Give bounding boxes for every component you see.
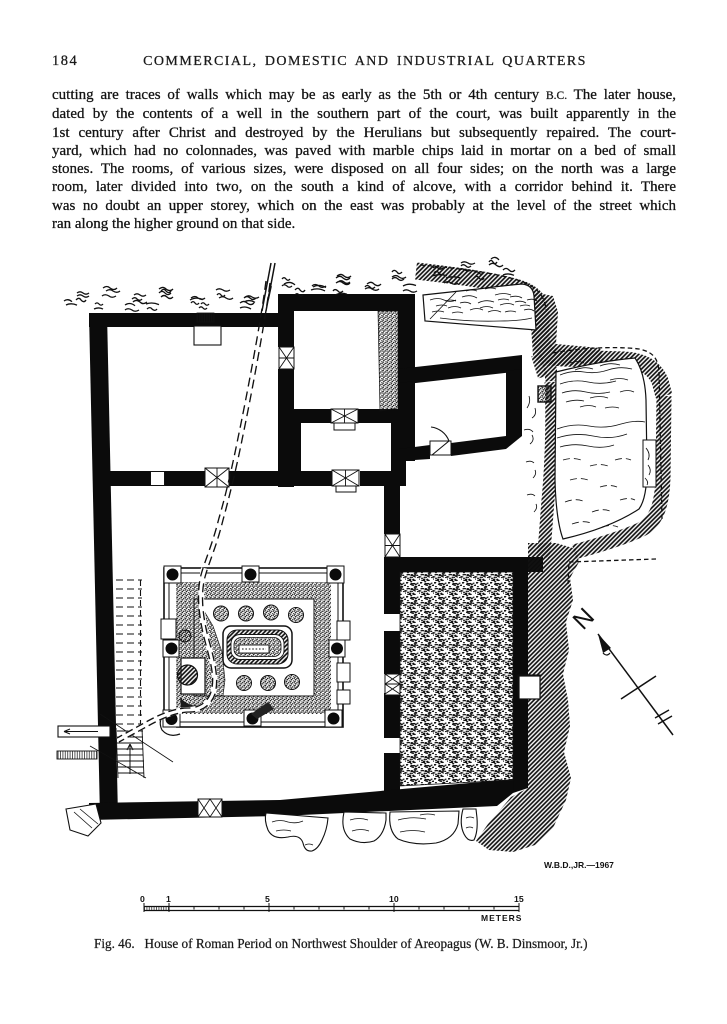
svg-text:N: N [567, 603, 600, 636]
svg-text:15: 15 [514, 894, 524, 904]
svg-text:5: 5 [265, 894, 270, 904]
svg-text:10: 10 [389, 894, 399, 904]
svg-text:W.B.D.,JR.—1967: W.B.D.,JR.—1967 [544, 860, 614, 870]
svg-text:0: 0 [140, 894, 145, 904]
svg-text:1: 1 [166, 894, 171, 904]
svg-text:METERS: METERS [481, 913, 522, 923]
